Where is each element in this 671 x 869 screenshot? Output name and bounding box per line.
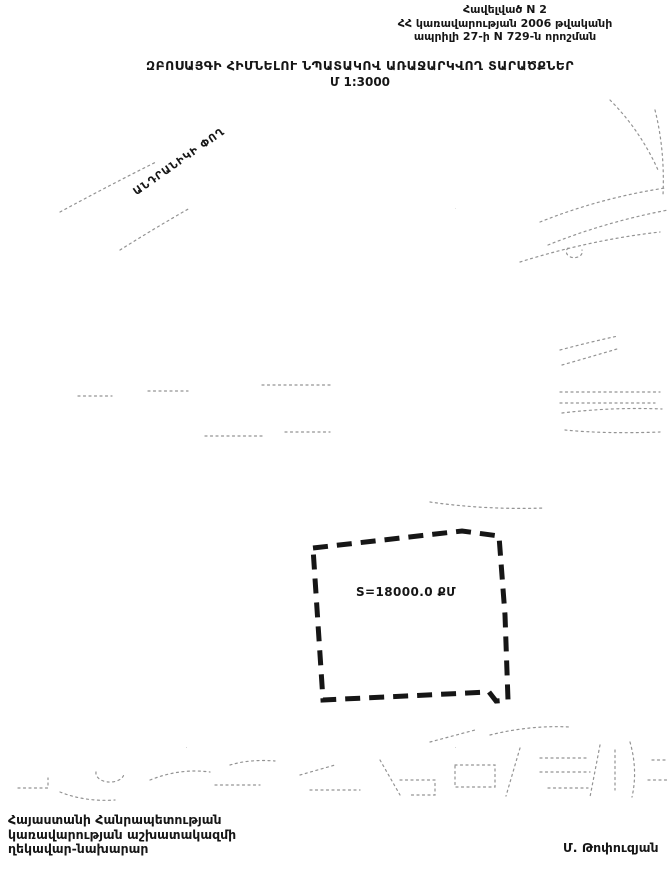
signature-line-2: կառավարության աշխատակազմի (8, 828, 236, 843)
signature-block: Հայաստանի Հանրապետության կառավարության ա… (8, 813, 236, 857)
signatory-name: Մ. Թոփուզյան (563, 840, 659, 855)
appendix-line-1: Հավելված N 2 (340, 3, 670, 17)
map-scale: Մ 1:3000 (100, 75, 620, 89)
parcel-area-label: S=18000.0 ՔՄ (356, 585, 456, 599)
signature-line-1: Հայաստանի Հանրապետության (8, 813, 236, 828)
page-title: ԶԲՈՍԱՅԳԻ ՀԻՄՆԵԼՈՒ ՆՊԱՏԱԿՈՎ ԱՌԱՋԱՐԿՎՈՂ ՏԱ… (100, 58, 620, 73)
appendix-line-2: ՀՀ կառավարության 2006 թվականի (340, 17, 670, 31)
map-canvas (0, 0, 671, 869)
signature-line-3: ղեկավար-նախարար (8, 842, 236, 857)
appendix-line-3: ապրիլի 27-ի N 729-ն որոշման (340, 30, 670, 44)
map-title-block: ԶԲՈՍԱՅԳԻ ՀԻՄՆԵԼՈՒ ՆՊԱՏԱԿՈՎ ԱՌԱՋԱՐԿՎՈՂ ՏԱ… (100, 58, 620, 89)
scanned-map-page: Հավելված N 2 ՀՀ կառավարության 2006 թվակա… (0, 0, 671, 869)
scan-noise (0, 92, 671, 814)
appendix-reference: Հավելված N 2 ՀՀ կառավարության 2006 թվակա… (340, 3, 670, 44)
